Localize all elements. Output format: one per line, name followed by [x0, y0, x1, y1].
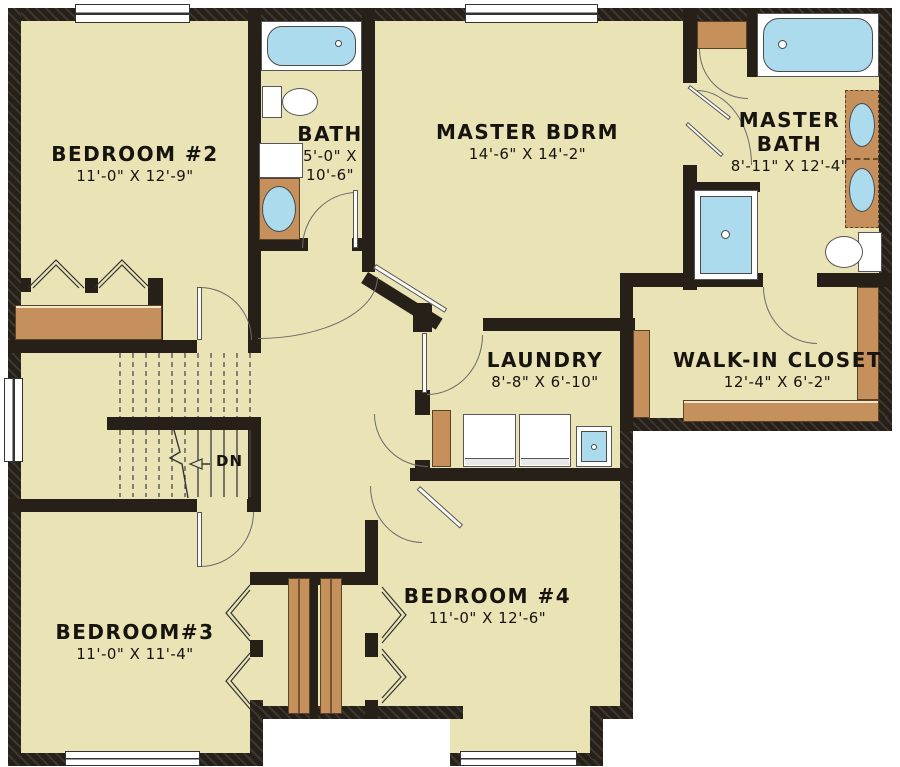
room-label-bedroom4: BEDROOM #4 11'-0" X 12'-6" — [380, 584, 595, 627]
closet-shelf — [633, 330, 650, 418]
door-leaf — [353, 190, 358, 248]
room-name: MASTER BDRM — [400, 120, 655, 144]
room-dims: 14'-6" X 14'-2" — [400, 145, 655, 163]
wall — [365, 633, 378, 657]
closet-rod — [288, 578, 310, 714]
stair-break-line — [160, 428, 260, 500]
wall — [483, 318, 635, 331]
window — [65, 751, 200, 766]
room-dims: 5'-0" X — [280, 147, 380, 165]
window — [75, 4, 190, 23]
room-dims: 8'-11" X 12'-4" — [712, 157, 867, 175]
toilet-icon — [825, 236, 863, 268]
door-leaf — [197, 287, 202, 340]
wall — [365, 700, 378, 719]
wall — [310, 572, 318, 719]
wall — [410, 468, 633, 481]
tub-faucet-icon — [335, 40, 342, 47]
room-label-bedroom2: BEDROOM #2 11'-0" X 12'-9" — [30, 142, 240, 185]
room-label-bedroom3: BEDROOM#3 11'-0" X 11'-4" — [25, 620, 245, 663]
room-dims: 11'-0" X 12'-9" — [30, 167, 240, 185]
closet-shelf — [15, 305, 162, 340]
dryer-controls — [521, 458, 569, 465]
stair-treads-upper — [107, 353, 253, 417]
wall — [683, 8, 697, 83]
room-name: BEDROOM#3 — [25, 620, 245, 644]
window — [465, 4, 598, 23]
bathtub-icon — [267, 26, 356, 66]
room-dims: 8'-8" X 6'-10" — [455, 373, 635, 391]
room-name: BATH — [280, 122, 380, 146]
floor-plan: DN BEDROOM #2 11'-0" X 1 — [0, 0, 900, 767]
linen-closet — [697, 21, 747, 49]
room-name: LAUNDRY — [455, 348, 635, 372]
window — [460, 751, 577, 766]
wall — [8, 499, 197, 512]
room-name: BATH — [712, 132, 867, 156]
door-leaf — [422, 333, 427, 393]
closet-rod — [320, 578, 342, 714]
wall — [8, 340, 197, 353]
room-label-walk-in-closet: WALK-IN CLOSET 12'-4" X 6'-2" — [655, 348, 900, 391]
wall — [365, 520, 378, 575]
room-dims: 12'-4" X 6'-2" — [655, 373, 900, 391]
shower-drain-icon — [721, 230, 730, 239]
bifold-door-icon — [26, 256, 152, 290]
tub-faucet-icon — [778, 40, 787, 49]
room-dims: 11'-0" X 11'-4" — [25, 645, 245, 663]
room-name: BEDROOM #2 — [30, 142, 240, 166]
wall — [247, 499, 261, 512]
room-name: BEDROOM #4 — [380, 584, 595, 608]
sink-drain-icon — [591, 444, 597, 450]
door-leaf — [197, 512, 202, 567]
washer-controls — [465, 458, 514, 465]
room-label-master-bath: MASTER BATH 8'-11" X 12'-4" — [712, 108, 867, 175]
room-label-laundry: LAUNDRY 8'-8" X 6'-10" — [455, 348, 635, 391]
stairs-down-label: DN — [216, 452, 243, 470]
room-name: WALK-IN CLOSET — [655, 348, 900, 372]
wall — [250, 706, 463, 719]
room-label-bath: BATH 5'-0" X 10'-6" — [280, 122, 380, 184]
toilet-tank — [262, 86, 282, 118]
pocket-door-jamb — [432, 410, 451, 467]
room-name: MASTER — [712, 108, 867, 132]
toilet-icon — [282, 88, 318, 116]
room-label-master-bdrm: MASTER BDRM 14'-6" X 14'-2" — [400, 120, 655, 163]
wall — [817, 273, 892, 287]
room-dims: 11'-0" X 12'-6" — [380, 609, 595, 627]
sink-icon — [262, 186, 296, 232]
closet-shelf — [683, 400, 879, 422]
window — [4, 378, 23, 462]
room-dims: 10'-6" — [280, 166, 380, 184]
